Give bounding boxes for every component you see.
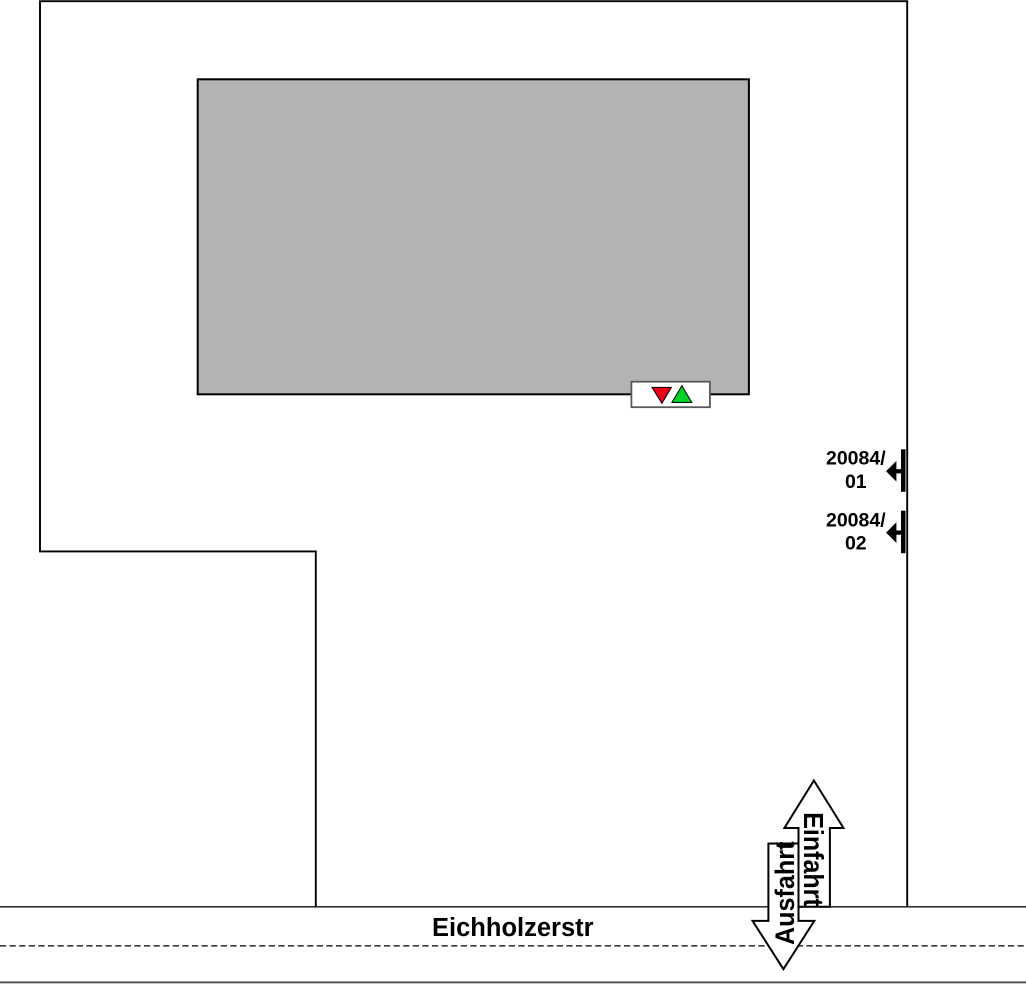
svg-text:20084/: 20084/ <box>826 510 886 532</box>
svg-text:Eichholzerstr: Eichholzerstr <box>432 914 594 942</box>
svg-text:Einfahrt: Einfahrt <box>798 812 829 907</box>
svg-text:20084/: 20084/ <box>826 448 886 470</box>
svg-text:02: 02 <box>845 533 867 555</box>
svg-text:01: 01 <box>845 471 867 493</box>
svg-text:Ausfahrt: Ausfahrt <box>770 842 800 946</box>
